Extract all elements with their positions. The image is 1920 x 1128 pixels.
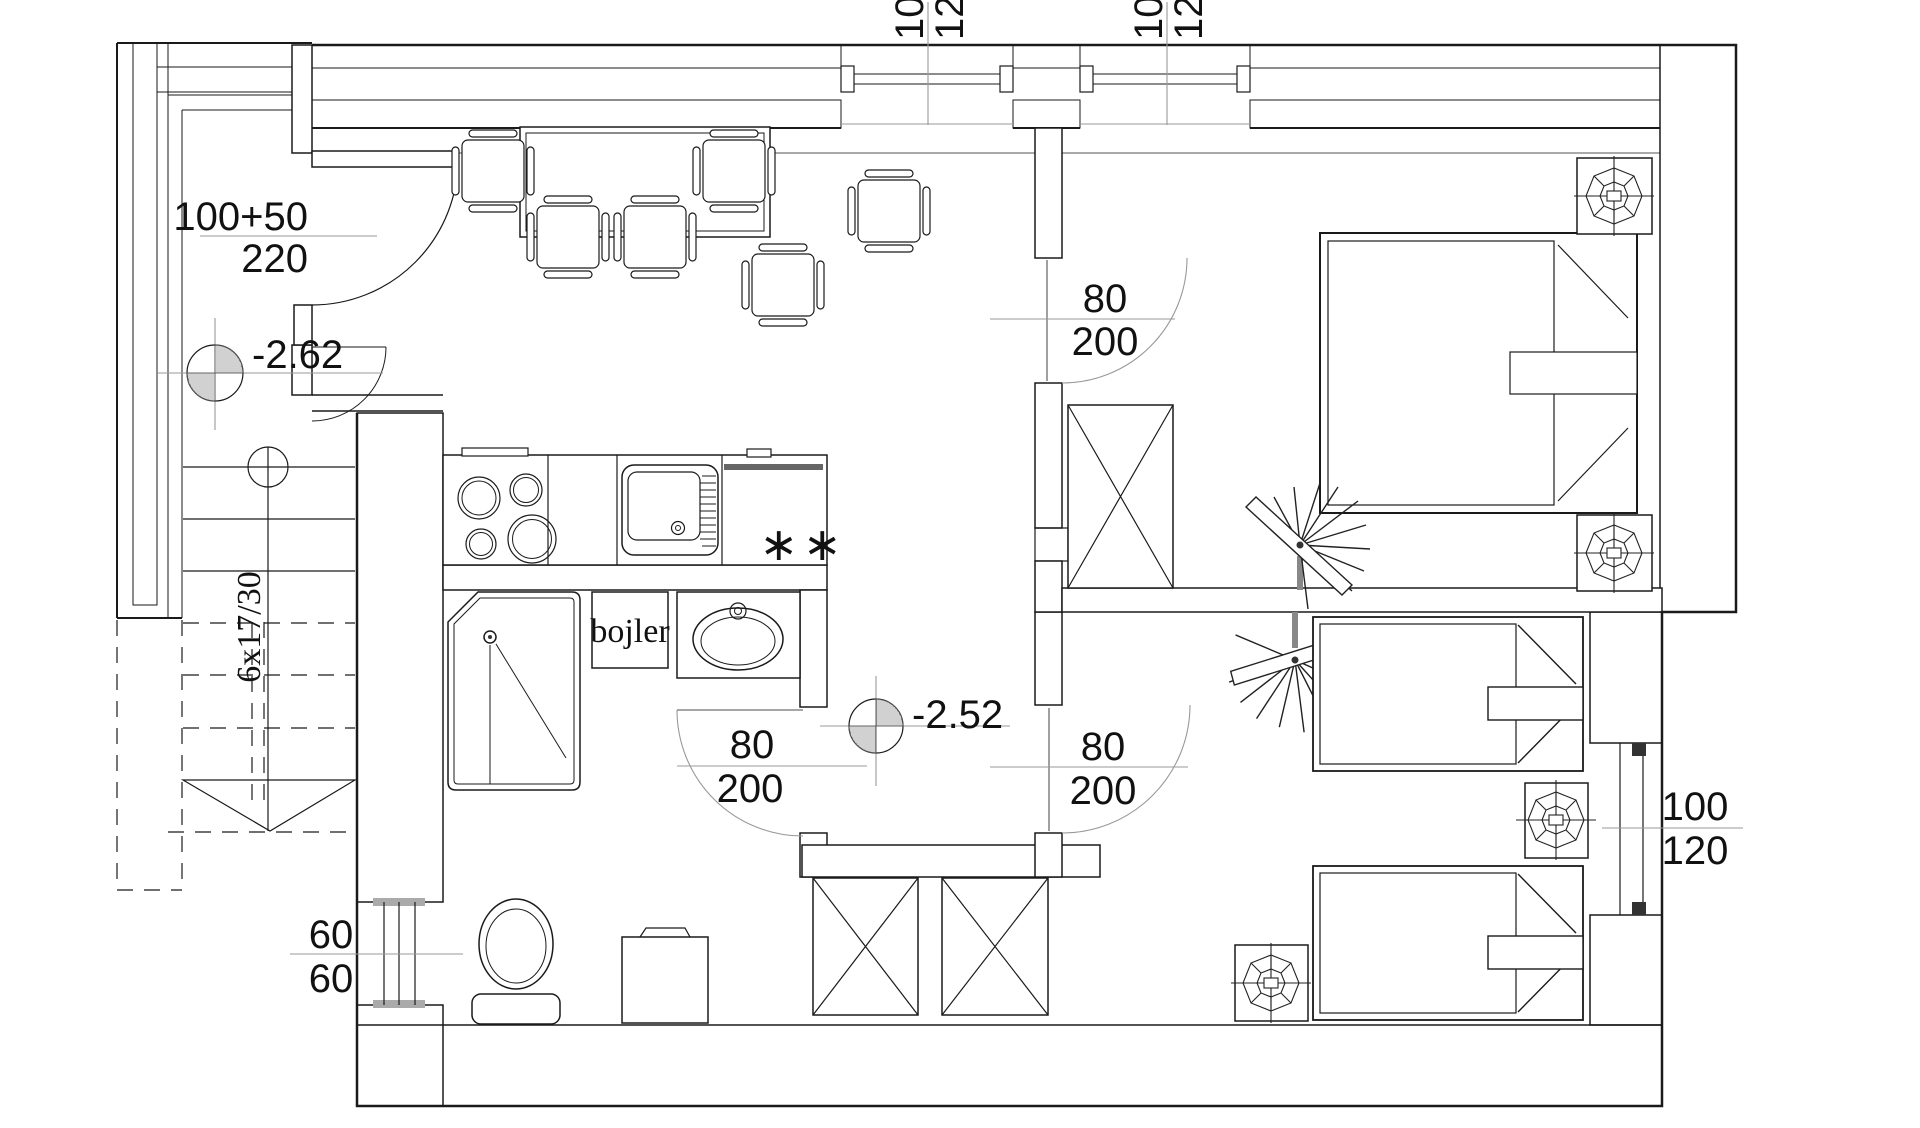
porch-walls xyxy=(117,43,443,618)
window-bathroom-height-label: 60 xyxy=(309,957,354,1001)
bedroom-partition-wall xyxy=(1062,588,1662,612)
level-marker-porch: -2.62 xyxy=(158,318,383,430)
wardrobe-hall-left xyxy=(813,878,918,1015)
chair xyxy=(614,196,696,278)
door-bedroom-bottom-height-label: 200 xyxy=(1070,769,1137,813)
stairs: 6x17/30 xyxy=(117,447,355,890)
door-bedroom-top-height-label: 200 xyxy=(1072,320,1139,364)
entry-door-swing-arc xyxy=(312,159,458,305)
shower xyxy=(448,592,580,790)
floor-plan-page: 100 120 100 120 100 120 60 60 100+50 220… xyxy=(0,0,1920,1128)
top-wall xyxy=(312,45,1660,128)
floor-plan-drawing: 100 120 100 120 100 120 60 60 100+50 220… xyxy=(0,0,1920,1128)
entry-door-width-label: 100+50 xyxy=(173,195,308,239)
level-porch-label: -2.62 xyxy=(252,333,343,377)
entry-door: 100+50 220 xyxy=(173,151,458,421)
door-bedroom-top: 80 200 xyxy=(990,258,1187,383)
fridge-star-rating: ∗∗ xyxy=(759,518,846,570)
door-bedroom-top-width-label: 80 xyxy=(1083,277,1128,321)
bedroom2-west-wall xyxy=(1035,612,1062,705)
door-bathroom-height-label: 200 xyxy=(717,767,784,811)
bedroom1-west-wall-end xyxy=(1035,561,1062,612)
stair-treads xyxy=(183,467,355,571)
window-right-height-label: 120 xyxy=(1662,829,1729,873)
single-bed xyxy=(1313,617,1583,771)
entry-door-leaf xyxy=(312,151,458,167)
washing-machine xyxy=(622,928,708,1023)
window-top-left-height-label: 120 xyxy=(928,0,972,40)
window-bathroom: 60 60 xyxy=(290,898,463,1008)
dining-set xyxy=(452,127,930,326)
door-bathroom: 80 200 xyxy=(677,710,867,836)
right-stone-wall-upper xyxy=(1660,45,1736,612)
chair xyxy=(527,196,609,278)
chair xyxy=(848,170,930,252)
stone-wall-below-bath-window xyxy=(357,1005,443,1106)
window-right-width-label: 100 xyxy=(1662,785,1729,829)
chair xyxy=(742,244,824,326)
window-right: 100 120 xyxy=(1602,743,1743,915)
bedroom1 xyxy=(1246,156,1654,609)
kitchen: ∗∗ xyxy=(443,448,847,570)
window-top-right-height-label: 120 xyxy=(1167,0,1211,40)
bedroom1-west-wall-upper xyxy=(1035,128,1062,258)
chair xyxy=(452,130,534,212)
window-top-left-width-label: 100 xyxy=(888,0,932,40)
door-bathroom-width-label: 80 xyxy=(730,723,775,767)
bedroom1-west-wall-lower xyxy=(1035,383,1062,528)
entry-door-height-label: 220 xyxy=(241,237,308,281)
door-bedroom-bottom-width-label: 80 xyxy=(1081,725,1126,769)
washbasin xyxy=(677,592,800,678)
double-bed xyxy=(1320,233,1637,513)
bath-hall-wall xyxy=(800,590,827,707)
window-top-left: 100 120 xyxy=(841,0,1013,125)
stove-handle xyxy=(462,448,528,456)
boiler-label: bojler xyxy=(590,613,670,650)
single-bed xyxy=(1313,866,1583,1020)
wardrobe-bedroom1 xyxy=(1068,405,1173,588)
toilet xyxy=(472,899,560,1024)
bottom-stone-wall xyxy=(357,1025,1662,1106)
duct-block xyxy=(1035,528,1068,561)
window-top-right: 100 120 xyxy=(1080,0,1250,125)
chair xyxy=(693,130,775,212)
door-bedroom-bottom: 80 200 xyxy=(990,705,1190,833)
window-bathroom-width-label: 60 xyxy=(309,913,354,957)
right-stone-wall-lower xyxy=(1590,915,1662,1025)
level-marker-hall: -2.52 xyxy=(820,676,1010,786)
bedroom2 xyxy=(1205,581,1596,1023)
stone-pillar-wall xyxy=(357,413,443,902)
stairs-label: 6x17/30 xyxy=(231,571,268,682)
wardrobe-hall-right xyxy=(942,878,1048,1015)
stair-direction-arrow xyxy=(183,780,355,831)
window-top-right-width-label: 100 xyxy=(1127,0,1171,40)
bedroom2-door-jamb xyxy=(1035,833,1062,877)
right-stone-wall-mid xyxy=(1590,612,1662,743)
level-hall-label: -2.52 xyxy=(912,693,1003,737)
